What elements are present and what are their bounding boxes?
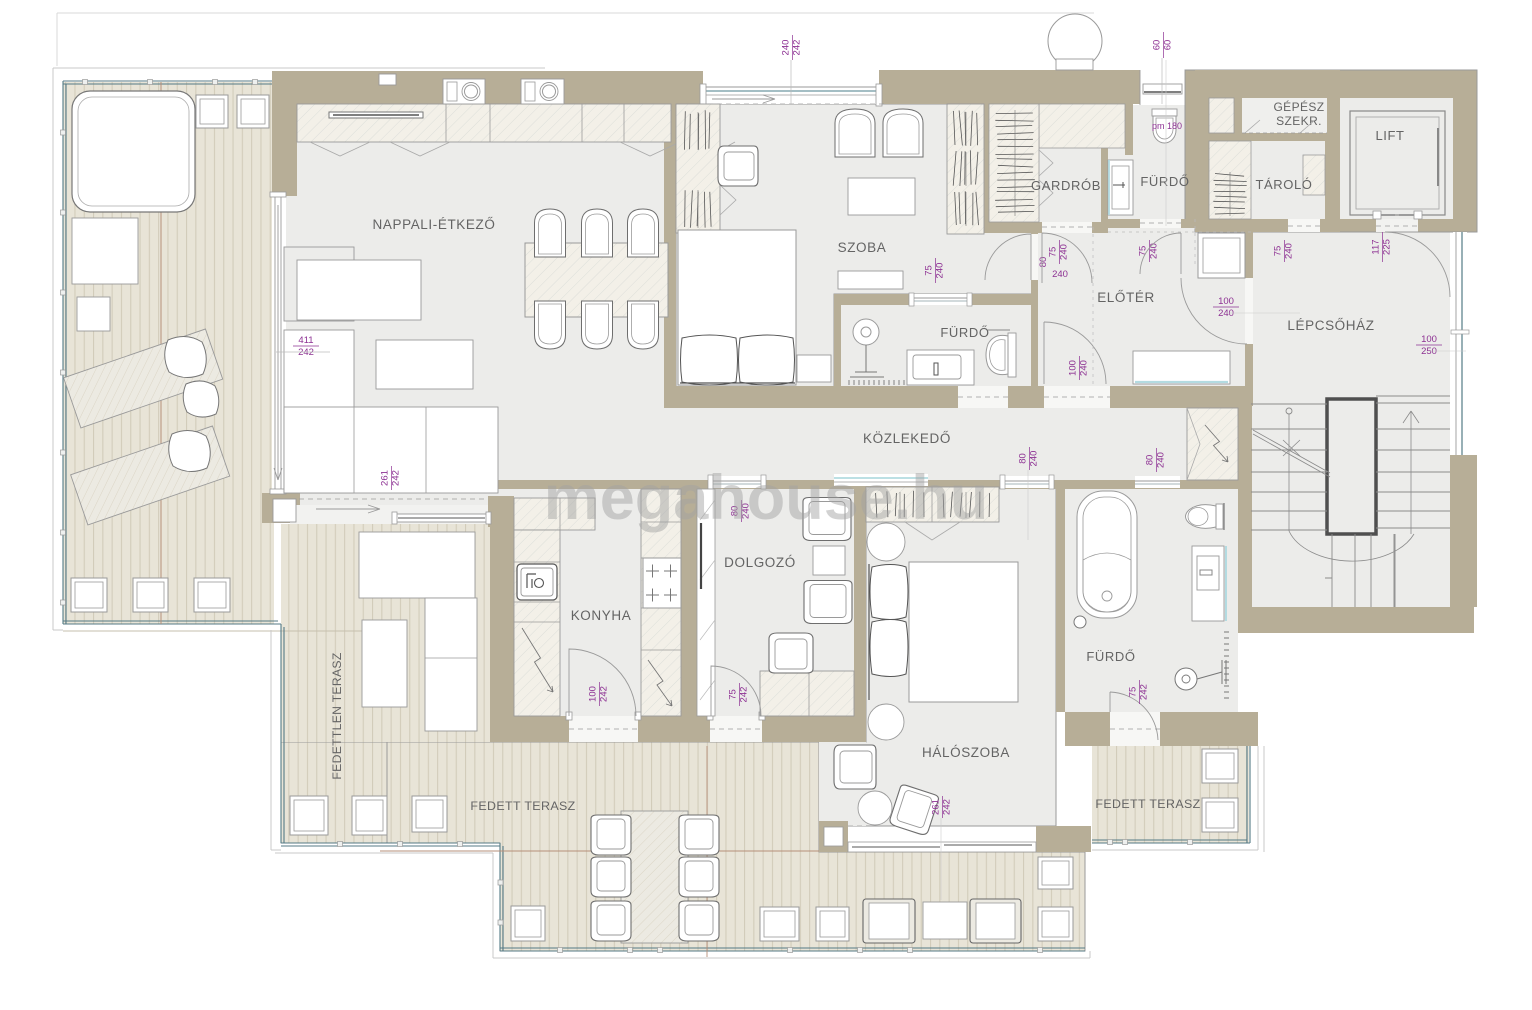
svg-text:GARDRÓB: GARDRÓB	[1031, 178, 1101, 193]
svg-text:megahouse.hu: megahouse.hu	[544, 463, 989, 533]
svg-text:242: 242	[599, 686, 610, 702]
svg-text:240: 240	[1029, 451, 1040, 467]
svg-text:240: 240	[1156, 452, 1167, 468]
svg-text:80: 80	[1038, 257, 1049, 268]
svg-text:242: 242	[1139, 684, 1150, 700]
svg-text:80: 80	[1018, 453, 1029, 464]
svg-text:FÜRDŐ: FÜRDŐ	[1086, 649, 1135, 664]
svg-text:117: 117	[1371, 239, 1382, 254]
svg-text:80: 80	[1145, 455, 1156, 466]
svg-text:240: 240	[1149, 243, 1160, 259]
svg-text:TÁROLÓ: TÁROLÓ	[1255, 177, 1312, 192]
svg-text:242: 242	[298, 347, 314, 358]
svg-text:411: 411	[298, 335, 313, 346]
svg-text:242: 242	[942, 799, 953, 815]
svg-text:KÖZLEKEDŐ: KÖZLEKEDŐ	[863, 431, 951, 446]
svg-text:240: 240	[935, 263, 946, 279]
svg-text:242: 242	[391, 470, 402, 486]
svg-text:240: 240	[1218, 308, 1234, 319]
svg-text:GÉPÉSZ: GÉPÉSZ	[1273, 99, 1324, 114]
svg-text:LÉPCSŐHÁZ: LÉPCSŐHÁZ	[1287, 318, 1374, 333]
svg-text:240: 240	[781, 40, 792, 56]
svg-text:100: 100	[1421, 334, 1437, 345]
svg-text:100: 100	[1218, 296, 1234, 307]
svg-text:75: 75	[1273, 246, 1284, 257]
svg-text:DOLGOZÓ: DOLGOZÓ	[724, 555, 796, 570]
svg-text:100: 100	[1068, 360, 1079, 376]
svg-text:75: 75	[1048, 247, 1059, 258]
svg-text:75: 75	[924, 265, 935, 276]
svg-text:pm 180: pm 180	[1152, 121, 1182, 131]
svg-text:240: 240	[1079, 360, 1090, 376]
svg-text:60: 60	[1163, 40, 1174, 51]
svg-text:FEDETTLEN TERASZ: FEDETTLEN TERASZ	[330, 652, 344, 779]
svg-text:NAPPALI-ÉTKEZŐ: NAPPALI-ÉTKEZŐ	[373, 217, 496, 232]
svg-text:HÁLÓSZOBA: HÁLÓSZOBA	[922, 745, 1010, 760]
svg-text:FEDETT TERASZ: FEDETT TERASZ	[470, 799, 575, 813]
svg-text:225: 225	[1382, 239, 1393, 255]
svg-text:242: 242	[792, 40, 803, 56]
svg-text:250: 250	[1421, 346, 1437, 357]
svg-text:242: 242	[739, 687, 750, 703]
svg-text:ELŐTÉR: ELŐTÉR	[1097, 290, 1155, 305]
svg-text:60: 60	[1152, 40, 1163, 51]
svg-text:LIFT: LIFT	[1375, 128, 1404, 143]
svg-text:100: 100	[588, 686, 599, 702]
svg-text:FÜRDŐ: FÜRDŐ	[940, 325, 989, 340]
svg-text:261: 261	[931, 799, 942, 815]
svg-text:240: 240	[1052, 269, 1068, 280]
svg-text:75: 75	[1128, 687, 1139, 698]
svg-text:SZEKR.: SZEKR.	[1276, 114, 1322, 128]
svg-text:240: 240	[1284, 243, 1295, 259]
svg-text:SZOBA: SZOBA	[838, 240, 887, 255]
svg-text:240: 240	[1059, 244, 1070, 260]
svg-text:FEDETT TERASZ: FEDETT TERASZ	[1095, 797, 1200, 811]
svg-text:KONYHA: KONYHA	[571, 608, 632, 623]
svg-text:261: 261	[380, 470, 391, 486]
svg-text:FÜRDŐ: FÜRDŐ	[1140, 174, 1189, 189]
svg-text:75: 75	[728, 689, 739, 700]
